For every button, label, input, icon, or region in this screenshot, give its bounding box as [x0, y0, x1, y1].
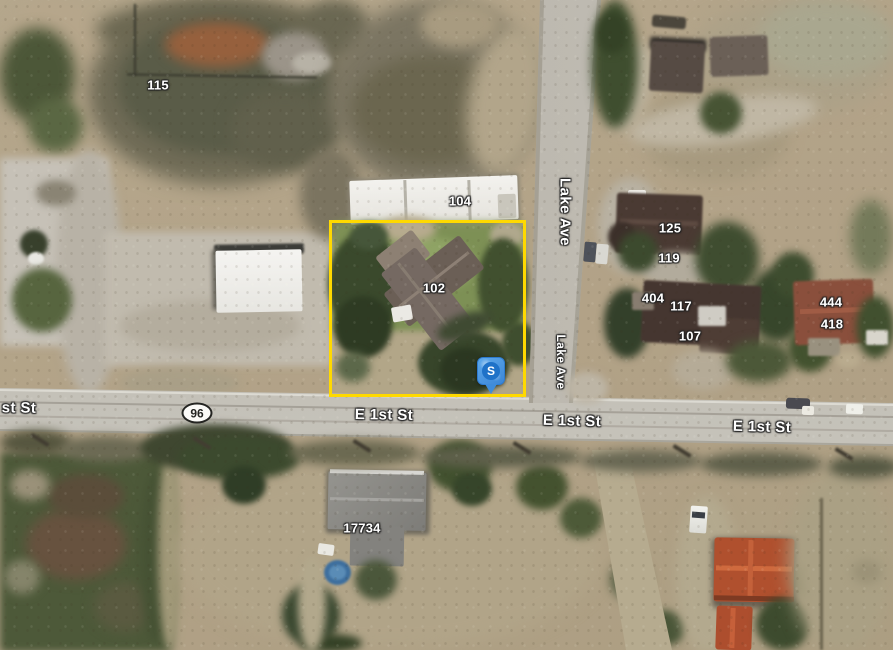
address-label-117: 117	[670, 299, 692, 314]
address-label-404: 404	[642, 291, 664, 306]
address-label-17734: 17734	[343, 521, 380, 536]
labels-layer: st St E 1st St E 1st St E 1st St Lake Av…	[0, 0, 893, 650]
street-label-e-1st-st-1: E 1st St	[355, 406, 414, 424]
marker-letter: S	[487, 364, 495, 378]
address-label-102: 102	[423, 281, 445, 296]
street-label-e-1st-st-3: E 1st St	[733, 418, 792, 437]
street-label-lake-ave-1: Lake Ave	[557, 178, 574, 246]
address-label-125: 125	[659, 221, 681, 236]
marker-letter-circle: S	[482, 362, 500, 380]
marker-tail-icon	[485, 384, 497, 394]
property-marker[interactable]: S	[477, 357, 505, 395]
address-label-104: 104	[449, 194, 471, 209]
address-label-107: 107	[679, 329, 701, 344]
satellite-map[interactable]: st St E 1st St E 1st St E 1st St Lake Av…	[0, 0, 893, 650]
street-label-e-1st-st-2: E 1st St	[543, 412, 602, 431]
address-label-418: 418	[821, 317, 843, 332]
address-label-444: 444	[820, 295, 842, 310]
address-label-119: 119	[658, 251, 680, 266]
route-shield-96: 96	[182, 403, 213, 424]
address-label-115: 115	[147, 78, 169, 93]
marker-body: S	[477, 357, 505, 385]
route-shield-96-number: 96	[190, 406, 203, 420]
street-label-1st-st-partial: st St	[2, 399, 37, 417]
street-label-lake-ave-2: Lake Ave	[554, 334, 568, 389]
